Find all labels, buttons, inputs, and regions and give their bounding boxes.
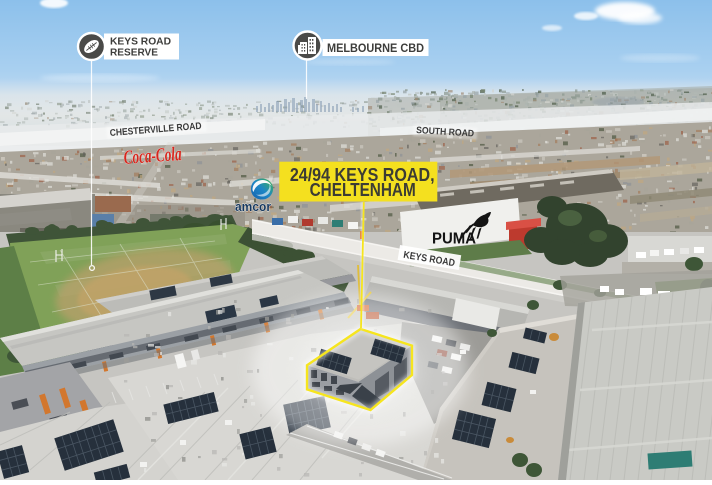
svg-text:PUMA: PUMA — [432, 231, 476, 248]
svg-text:KEYS ROAD: KEYS ROAD — [110, 37, 171, 48]
svg-text:MELBOURNE CBD: MELBOURNE CBD — [327, 41, 424, 55]
svg-text:RESERVE: RESERVE — [110, 48, 158, 59]
svg-text:amcor: amcor — [235, 199, 271, 214]
svg-text:Coca-Cola: Coca-Cola — [123, 143, 182, 169]
svg-text:CHELTENHAM: CHELTENHAM — [310, 179, 416, 200]
